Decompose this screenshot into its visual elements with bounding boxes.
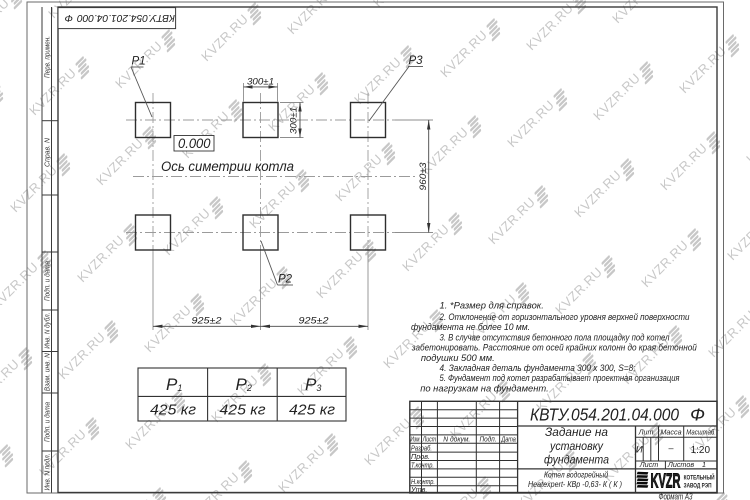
svg-text:KVZR.RU: KVZR.RU — [0, 259, 41, 312]
svg-text:–: – — [668, 443, 673, 453]
svg-text:KVZR.RU: KVZR.RU — [103, 496, 156, 500]
svg-text:Подп.: Подп. — [480, 435, 497, 444]
svg-text:KVZR.RU: KVZR.RU — [571, 167, 624, 220]
svg-text:Масса: Масса — [660, 427, 681, 436]
svg-text:по нагрузкам на фундамент.: по нагрузкам на фундамент. — [420, 382, 549, 393]
svg-text:Подп. и дата: Подп. и дата — [43, 261, 52, 301]
svg-text:Инв. N дубл.: Инв. N дубл. — [43, 313, 52, 349]
svg-text:2. Отклонение от горизонтальн: 2. Отклонение от горизонтального уровня … — [439, 311, 691, 322]
svg-text:KVZR.RU: KVZR.RU — [638, 237, 691, 290]
svg-text:N докум.: N докум. — [443, 435, 470, 444]
svg-text:Лист: Лист — [639, 460, 659, 469]
svg-text:Формат А3: Формат А3 — [659, 491, 693, 500]
svg-text:P3: P3 — [409, 55, 424, 67]
svg-text:Изм.: Изм. — [410, 435, 421, 444]
svg-text:KVZR.RU: KVZR.RU — [313, 248, 366, 301]
svg-text:425 кг: 425 кг — [150, 403, 196, 419]
svg-text:KVZR.RU: KVZR.RU — [0, 356, 22, 409]
svg-text:KVZR.RU: KVZR.RU — [724, 210, 750, 263]
svg-text:KVZR.RU: KVZR.RU — [7, 162, 60, 215]
svg-text:1:20: 1:20 — [691, 445, 711, 456]
svg-text:KVZR.RU: KVZR.RU — [437, 27, 490, 80]
svg-text:300±1: 300±1 — [247, 76, 274, 86]
svg-text:KVZR.RU: KVZR.RU — [743, 113, 750, 166]
svg-text:KVZR.RU: KVZR.RU — [485, 194, 538, 247]
svg-text:KVZR.RU: KVZR.RU — [332, 151, 385, 204]
svg-text:KVZR.RU: KVZR.RU — [93, 135, 146, 188]
svg-text:KVZR.RU: KVZR.RU — [552, 264, 605, 317]
svg-text:фундамента: фундамента — [544, 453, 609, 467]
svg-text:KVZR.RU: KVZR.RU — [74, 232, 127, 285]
svg-text:KVZR.RU: KVZR.RU — [447, 388, 500, 441]
svg-text:KVZR.RU: KVZR.RU — [676, 43, 729, 96]
svg-text:KVZR.RU: KVZR.RU — [275, 442, 328, 495]
svg-text:Лист: Лист — [422, 435, 436, 444]
svg-text:KVZR.RU: KVZR.RU — [284, 0, 337, 37]
svg-text:KVZR.RU: KVZR.RU — [609, 0, 662, 26]
svg-text:KVZR.RU: KVZR.RU — [590, 70, 643, 123]
svg-text:KVZR.RU: KVZR.RU — [361, 415, 414, 468]
svg-text:КВТУ.054.201.04.000: КВТУ.054.201.04.000 — [530, 404, 679, 424]
svg-text:Ось симетрии котла: Ось симетрии котла — [161, 159, 294, 175]
svg-text:1: 1 — [702, 460, 706, 469]
svg-text:Т.контр.: Т.контр. — [411, 460, 434, 469]
svg-text:KVZR.RU: KVZR.RU — [198, 11, 251, 64]
svg-text:KVZR.RU: KVZR.RU — [504, 97, 557, 150]
svg-text:KVZR.RU: KVZR.RU — [657, 140, 710, 193]
svg-text:KVZR.RU: KVZR.RU — [523, 0, 576, 53]
svg-text:Задание на: Задание на — [545, 425, 608, 439]
svg-text:0.000: 0.000 — [178, 136, 211, 151]
svg-text:Подп. и дата: Подп. и дата — [43, 402, 52, 442]
svg-text:KVZR.RU: KVZR.RU — [0, 0, 12, 48]
svg-text:Утв.: Утв. — [410, 485, 427, 494]
svg-text:КВТУ.054.201.04.000: КВТУ.054.201.04.000 — [77, 12, 175, 24]
svg-text:KVZR: KVZR — [651, 471, 681, 493]
svg-text:ЗАВОД РЭП: ЗАВОД РЭП — [684, 482, 712, 489]
svg-text:Взам. инв. N: Взам. инв. N — [43, 352, 52, 391]
svg-text:Перв. примен.: Перв. примен. — [43, 36, 52, 78]
svg-text:925±2: 925±2 — [299, 316, 329, 326]
svg-text:925±2: 925±2 — [192, 316, 222, 326]
svg-text:И: И — [636, 445, 643, 456]
svg-text:Лит.: Лит. — [638, 427, 656, 436]
svg-text:Ф: Ф — [690, 404, 705, 424]
svg-text:KVZR.RU: KVZR.RU — [179, 108, 232, 161]
svg-text:KVZR.RU: KVZR.RU — [351, 54, 404, 107]
svg-text:Справ. N: Справ. N — [43, 137, 52, 167]
svg-text:Инв. N подл.: Инв. N подл. — [43, 454, 52, 491]
svg-text:KVZR.RU: KVZR.RU — [246, 178, 299, 231]
svg-text:425 кг: 425 кг — [220, 403, 266, 419]
svg-text:KVZR.RU: KVZR.RU — [189, 469, 242, 500]
svg-text:КОТЕЛЬНЫЙ: КОТЕЛЬНЫЙ — [684, 474, 715, 482]
svg-text:P1: P1 — [166, 375, 182, 394]
svg-text:P1: P1 — [132, 56, 146, 68]
svg-text:KVZR.RU: KVZR.RU — [227, 275, 280, 328]
svg-text:Масштаб: Масштаб — [686, 427, 715, 436]
svg-text:Листов: Листов — [667, 460, 694, 469]
svg-text:Heatexpert- КВр -0,63- К ( К ): Heatexpert- КВр -0,63- К ( К ) — [528, 480, 622, 489]
svg-text:960±3: 960±3 — [418, 163, 428, 191]
svg-text:Дата: Дата — [501, 435, 516, 444]
svg-text:KVZR.RU: KVZR.RU — [141, 302, 194, 355]
svg-text:Котел водогрейный: Котел водогрейный — [544, 470, 609, 479]
svg-text:установку: установку — [549, 439, 604, 453]
svg-text:KVZR.RU: KVZR.RU — [399, 221, 452, 274]
svg-text:425 кг: 425 кг — [289, 403, 335, 419]
svg-text:KVZR.RU: KVZR.RU — [55, 329, 108, 382]
svg-text:300±1: 300±1 — [289, 107, 299, 134]
svg-text:Ф: Ф — [65, 12, 73, 24]
svg-text:KVZR.RU: KVZR.RU — [705, 307, 750, 360]
svg-text:KVZR.RU: KVZR.RU — [26, 65, 79, 118]
svg-text:P2: P2 — [278, 274, 293, 286]
svg-text:1. *Размер для справок.: 1. *Размер для справок. — [440, 300, 544, 311]
